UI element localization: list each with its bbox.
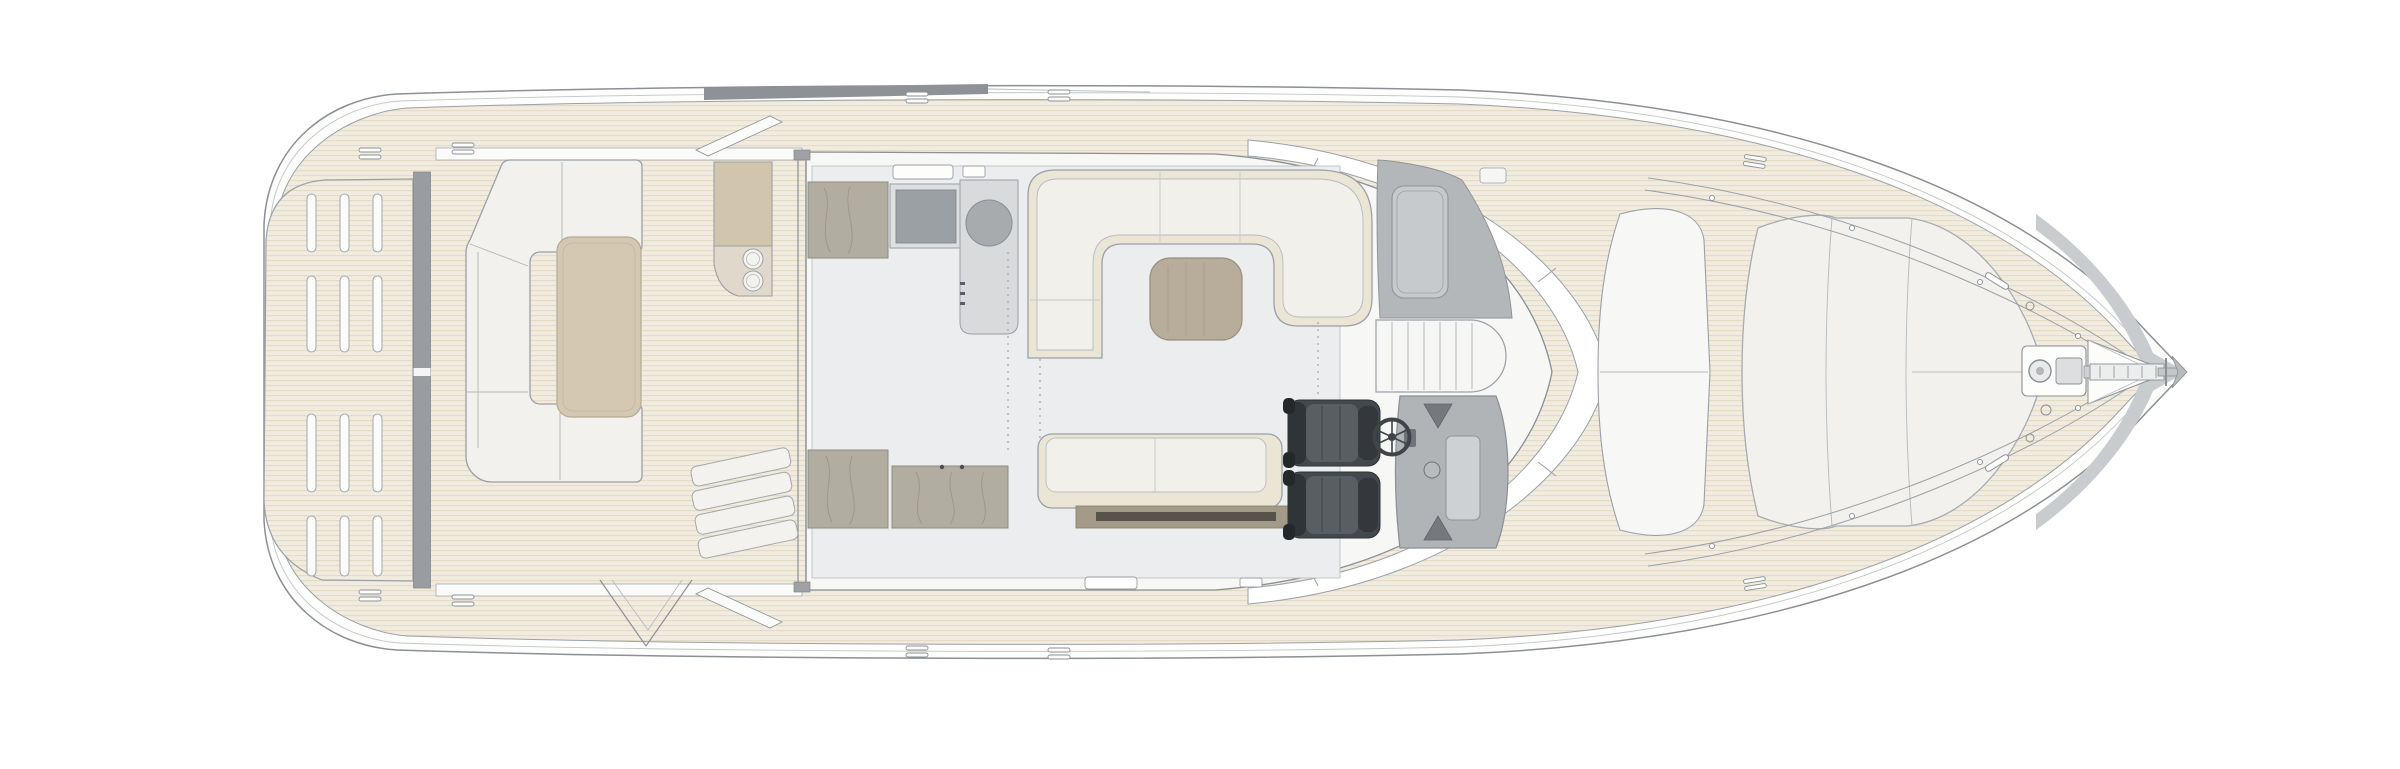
cabinet-b-fitting-1 [940,465,944,469]
transom-gate [414,368,431,376]
salon-table [1150,258,1242,340]
anchor-track [2090,364,2164,380]
windshield-corner-box [1480,168,1506,183]
transom-strip [414,172,431,588]
bench-cushion [1046,438,1266,492]
companionway-well [1376,320,1506,392]
galley-vent [963,166,985,177]
cooktop [896,190,956,243]
cabinet-b [892,466,1008,528]
wetbar-top [714,162,772,246]
yacht-deck-plan [0,0,2400,769]
cockpit-table [557,237,641,417]
salon-table-top [1150,258,1242,340]
helm-seat-2 [1283,470,1380,540]
wet-bar [714,162,772,296]
wetbar-sink-1 [743,249,763,269]
windlass-gypsy-hub [2036,367,2044,375]
galley-window [893,165,953,179]
helm-seat-1 [1283,398,1380,468]
cabinet-a [808,450,888,528]
wetbar-sink-2 [743,271,763,291]
salon-bench [1038,434,1296,528]
cabinet-b-fitting-2 [960,465,964,469]
bench-plinth-stripe [1096,512,1276,521]
windlass-motor [2056,358,2082,384]
port-wall-hatch [1085,577,1137,589]
companionway [1376,320,1506,392]
console-display [1446,436,1480,520]
dashboard-hatch [1392,186,1448,298]
port-wall-vent [1240,578,1262,587]
galley-sink [966,200,1012,246]
coaming-top [436,148,802,160]
swim-platform [264,172,431,588]
helm-console [1396,396,1509,548]
console-compass [1424,462,1440,478]
swim-platform-deck [264,179,413,581]
